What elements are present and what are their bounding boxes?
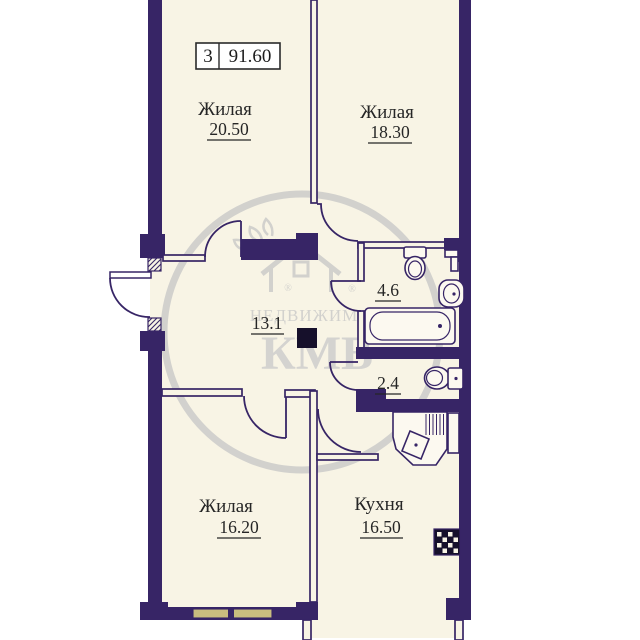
floor-plan: ® ® НЕДВИЖИМОСТЬ КМВ [0, 0, 640, 640]
wall-kitchen-vestibule [317, 454, 378, 460]
living2-name: Жилая [360, 102, 414, 123]
title-total-area: 91.60 [229, 46, 272, 67]
wall-bathroom-top-corner [444, 238, 460, 250]
wall-bathroom-left-upper [358, 243, 364, 281]
hall-area: 13.1 [252, 313, 283, 333]
window-mullion [228, 609, 234, 618]
wall-bottom-right-block [296, 602, 318, 620]
living2-area: 18.30 [370, 122, 410, 142]
wall-hatch-entry-bottom [148, 318, 161, 331]
wall-right-lower [459, 262, 471, 600]
wall-bathroom-left-lower [358, 311, 364, 352]
wall-bottom-left-block [140, 602, 168, 620]
wall-hatch-entry-top [148, 258, 161, 271]
living1-area: 20.50 [209, 119, 249, 139]
watermark-reg-right: ® [348, 284, 356, 295]
balcony-wall-left [303, 620, 311, 640]
kitchen-area: 16.50 [361, 517, 401, 537]
bathroom-area: 4.6 [377, 280, 399, 300]
wall-right-upper [459, 0, 471, 242]
title-box: 3 91.60 [196, 43, 280, 69]
room-label-wc: 2.4 [375, 373, 401, 394]
wc-area: 2.4 [377, 373, 399, 393]
entry-door [110, 272, 151, 317]
wall-living3-kitchen [310, 391, 317, 602]
watermark-reg-left: ® [284, 283, 292, 294]
room-label-hall: 13.1 [251, 313, 284, 334]
wall-hall-top-dark [241, 239, 298, 260]
wall-hall-top-block [296, 233, 318, 260]
room-label-bathroom: 4.6 [375, 280, 401, 301]
wall-bathroom-wc-divider [356, 347, 460, 359]
wall-hall-top-thin [163, 255, 205, 261]
wall-between-top-rooms [311, 0, 317, 203]
living1-name: Жилая [198, 99, 252, 120]
wall-left-block2 [140, 331, 165, 351]
wall-left-upper [148, 0, 162, 238]
wall-hall-living3-left [162, 389, 242, 396]
balcony-wall-right [455, 620, 463, 640]
title-rooms-count: 3 [203, 46, 213, 67]
wash-basin-icon [439, 280, 464, 307]
wc-toilet-icon [425, 367, 464, 389]
wall-wc-bottom [356, 399, 460, 412]
wall-left-block1 [140, 234, 165, 258]
kitchen-duct [448, 413, 459, 453]
living3-area: 16.20 [219, 517, 259, 537]
bathtub-icon [365, 308, 455, 344]
shaft-box [297, 328, 317, 348]
floor-plan-page: ® ® НЕДВИЖИМОСТЬ КМВ [0, 0, 640, 640]
living3-name: Жилая [199, 496, 253, 517]
toilet-icon [404, 247, 426, 280]
kitchen-name: Кухня [354, 494, 403, 515]
wall-left-lower [148, 351, 162, 606]
stove-icon [434, 529, 460, 555]
wall-bathroom-top [358, 242, 446, 248]
wall-right-bottom-block [446, 598, 471, 620]
